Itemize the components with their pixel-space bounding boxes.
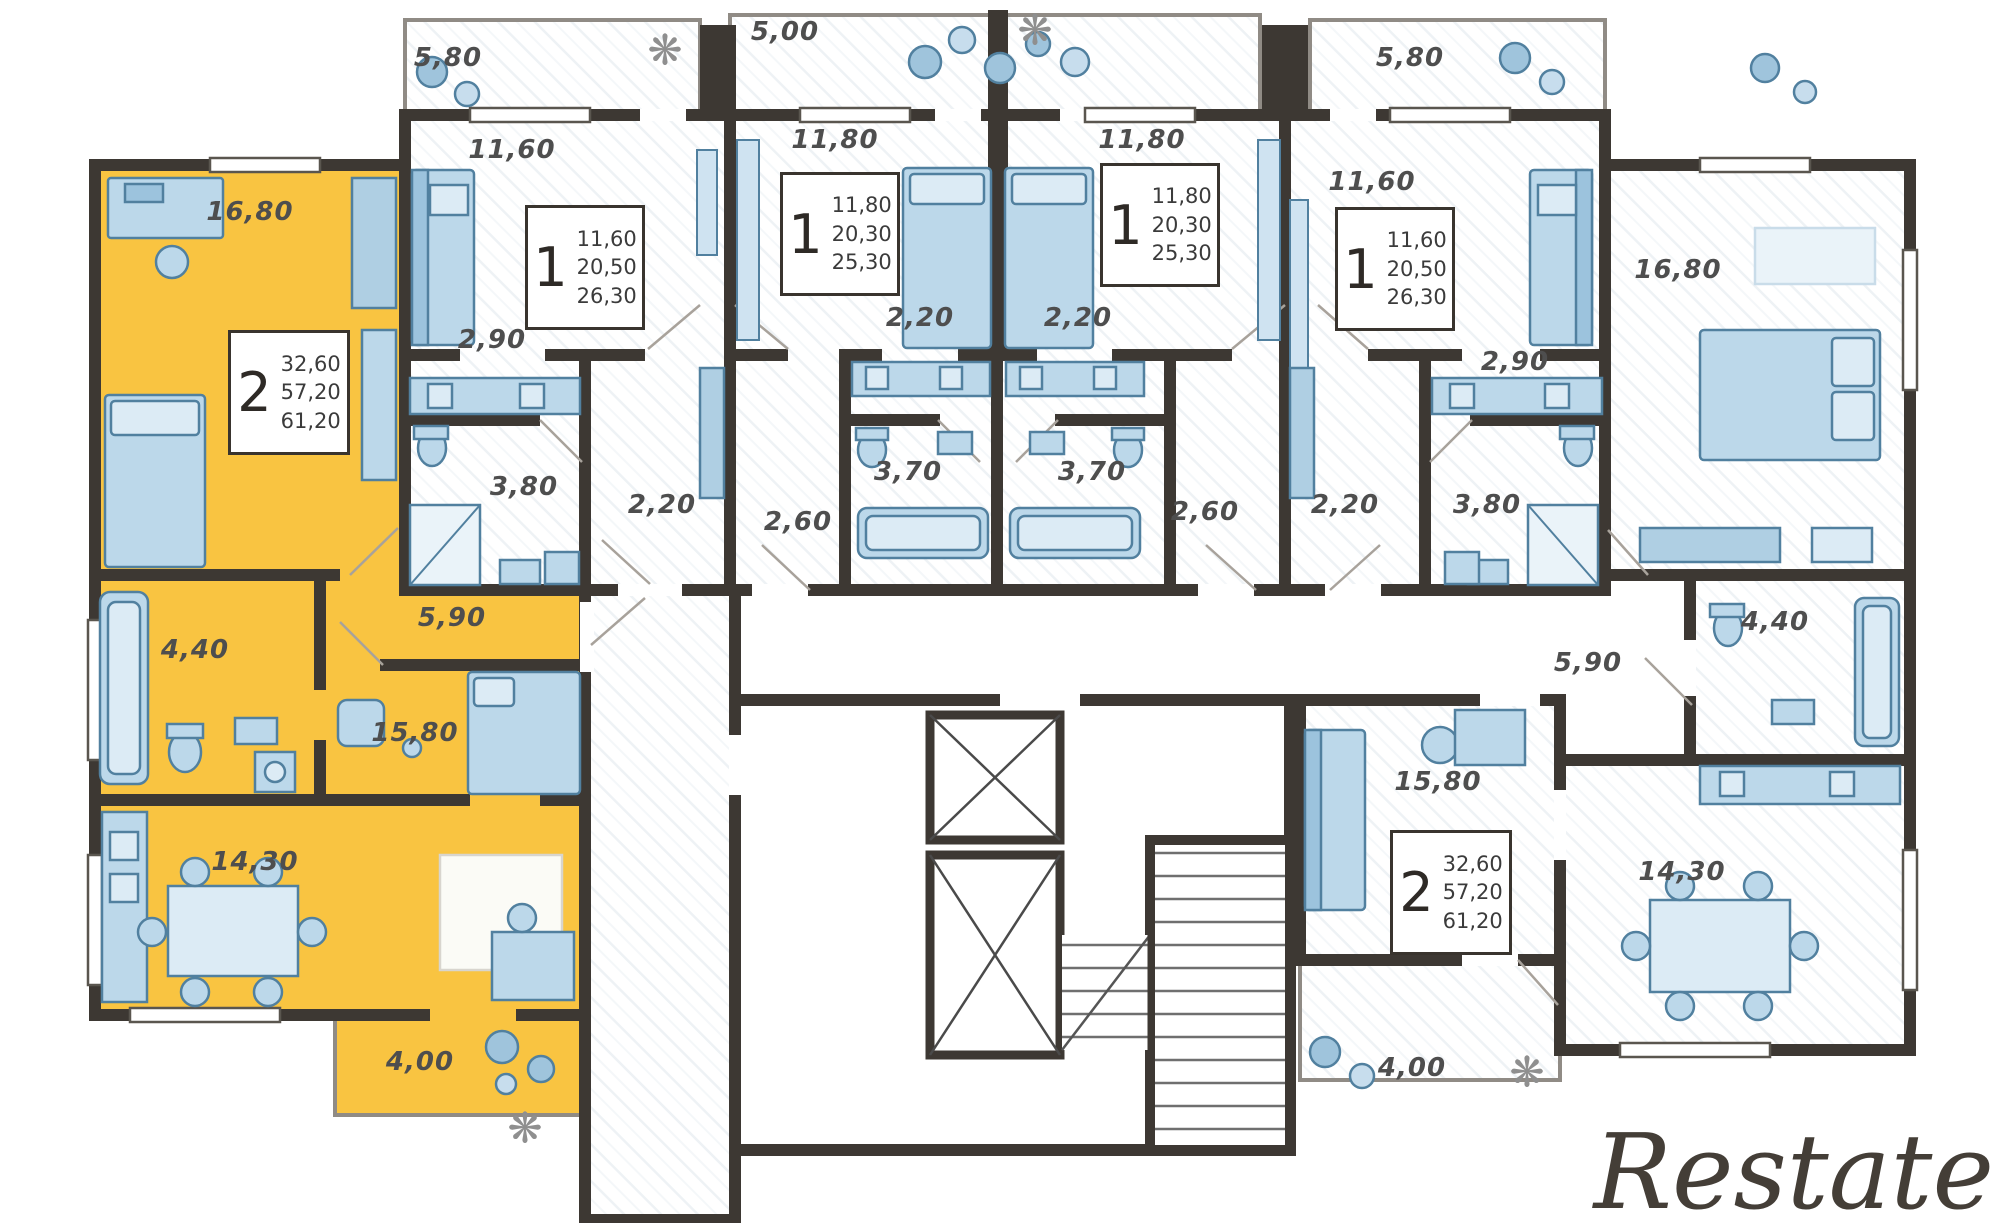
area-total: 26,30 (577, 282, 637, 310)
toilet-tank-c (1112, 428, 1144, 440)
stove-unit (110, 874, 138, 902)
floor-plan-drawing (0, 0, 2000, 1223)
room-label: 5,00 (751, 17, 819, 47)
sink-d (1450, 384, 1474, 408)
bench-e (1812, 528, 1872, 562)
dining-chair (298, 918, 326, 946)
core (585, 590, 1290, 1220)
sink-unit (110, 832, 138, 860)
desk-2 (492, 932, 574, 1000)
toilet-tank-e (1710, 604, 1744, 617)
bathtub-inner (108, 602, 140, 774)
dining-chair (254, 978, 282, 1006)
desk-e (1455, 710, 1525, 765)
wardrobe (352, 178, 396, 308)
room-label: 14,30 (211, 847, 298, 877)
room-label: 15,80 (371, 718, 458, 748)
apartment-info-box: 1 11,60 20,50 26,30 (525, 205, 645, 330)
area-main: 20,30 (1152, 211, 1212, 239)
flower-pot-e (1350, 1064, 1374, 1088)
wardrobe-e (1640, 528, 1780, 562)
dining-chair-e (1744, 872, 1772, 900)
area-total: 25,30 (1152, 239, 1212, 267)
stairs (1150, 840, 1290, 1150)
washer-d (1445, 552, 1479, 584)
apartment-info-box: 2 32,60 57,20 61,20 (1390, 830, 1512, 955)
room-label: 2,90 (458, 325, 526, 355)
room-label: 2,60 (764, 507, 832, 537)
room-label: 5,90 (418, 603, 486, 633)
area-main: 57,20 (1443, 878, 1503, 906)
balcony-apt-d (1310, 20, 1605, 115)
plant-icon: ❋ (647, 26, 682, 75)
washer-a (545, 552, 579, 584)
wardrobe-d (1290, 368, 1314, 498)
flower-pot (486, 1031, 518, 1063)
dining-chair (138, 918, 166, 946)
room-label: 15,80 (1394, 767, 1481, 797)
bed-2-pillow (474, 678, 514, 706)
bed-b-pillow (910, 174, 984, 204)
apartment-info-box: 1 11,80 20,30 25,30 (1100, 163, 1220, 287)
dining-chair (181, 978, 209, 1006)
apartment-info-box: 1 11,80 20,30 25,30 (780, 172, 900, 296)
chair-2 (508, 904, 536, 932)
toilet-tank-d (1560, 426, 1594, 439)
sink-a (428, 384, 452, 408)
wardrobe-a (700, 368, 724, 498)
sink-cab-c (1030, 432, 1064, 454)
sofa-d-back (1576, 170, 1592, 345)
apartment-type: 1 (788, 203, 822, 266)
flower-pot-d (1500, 43, 1530, 73)
toilet-tank-a (414, 426, 448, 439)
chair (156, 246, 188, 278)
watermark: Restate (1594, 1111, 1994, 1223)
apartment-type: 2 (1399, 861, 1433, 924)
balcony-door-opening (430, 1008, 516, 1022)
room-label: 16,80 (1634, 255, 1721, 285)
room-label: 2,20 (1044, 303, 1112, 333)
sink-cab-e (1772, 700, 1814, 724)
area-main: 57,20 (281, 378, 341, 406)
bed-c-pillow (1012, 174, 1086, 204)
plant-icon: ❋ (1509, 1048, 1544, 1097)
toilet-tank (167, 724, 203, 738)
area-living: 11,80 (832, 191, 892, 219)
room-label: 2,20 (1311, 490, 1379, 520)
sink (235, 718, 277, 744)
room-label: 3,80 (490, 472, 558, 502)
apartment-type: 2 (237, 361, 271, 424)
stove-a (520, 384, 544, 408)
corridor (585, 590, 735, 1220)
stove-e (1830, 772, 1854, 796)
flower-pot-e-top (1751, 54, 1779, 82)
sofa-d-pillow (1538, 185, 1576, 215)
area-living: 32,60 (1443, 850, 1503, 878)
toilet-tank-b (856, 428, 888, 440)
apartment-info-box: 2 32,60 57,20 61,20 (228, 330, 350, 455)
flower-pot-bc (949, 27, 975, 53)
sofa-pillow (430, 185, 468, 215)
area-living: 11,80 (1152, 182, 1212, 210)
flower-pot (528, 1056, 554, 1082)
room-label: 11,80 (1098, 125, 1185, 155)
room-label: 3,80 (1453, 490, 1521, 520)
dining-chair-e (1622, 932, 1650, 960)
room-label: 5,80 (1376, 43, 1444, 73)
flower-pot-bc (909, 46, 941, 78)
room-label: 5,90 (1554, 648, 1622, 678)
flower-pot-a (455, 82, 479, 106)
sink-cab-a (500, 560, 540, 584)
apartment-type: 1 (533, 236, 567, 299)
room-label: 2,20 (886, 303, 954, 333)
room-label: 2,60 (1171, 497, 1239, 527)
flower-pot-e-top (1794, 81, 1816, 103)
stove-d (1545, 384, 1569, 408)
flower-pot-e (1310, 1037, 1340, 1067)
apartment-type: 1 (1108, 194, 1142, 257)
sofa-back (412, 170, 428, 345)
area-main: 20,30 (832, 220, 892, 248)
room-label: 5,80 (414, 43, 482, 73)
rug-e (1755, 228, 1875, 284)
bathtub-e-inner (1863, 606, 1891, 738)
room-label: 4,40 (161, 635, 229, 665)
sink-cab-b (938, 432, 972, 454)
floor-plan: 16,80 4,40 5,90 15,80 14,30 4,00 5,80 11… (0, 0, 2000, 1223)
area-total: 61,20 (281, 407, 341, 435)
apartment-type: 1 (1343, 238, 1377, 301)
flower-pot-bc (985, 53, 1015, 83)
area-total: 25,30 (832, 248, 892, 276)
room-label: 3,70 (874, 457, 942, 487)
washing-machine-door (265, 762, 285, 782)
stove-c (1094, 367, 1116, 389)
area-living: 32,60 (281, 350, 341, 378)
room-label: 2,20 (628, 490, 696, 520)
plant-icon: ❋ (1017, 6, 1052, 55)
bathtub-c-inner (1018, 516, 1132, 550)
plant-icon: ❋ (507, 1104, 542, 1153)
area-main: 20,50 (577, 253, 637, 281)
dining-chair (181, 858, 209, 886)
room-label: 11,60 (468, 135, 555, 165)
monitor (125, 184, 163, 202)
room-label: 3,70 (1058, 457, 1126, 487)
dining-chair-e (1790, 932, 1818, 960)
dining-chair-e (1744, 992, 1772, 1020)
room-label: 4,00 (386, 1047, 454, 1077)
dining-table (168, 886, 298, 976)
area-living: 11,60 (577, 225, 637, 253)
flower-pot-d (1540, 70, 1564, 94)
area-living: 11,60 (1387, 226, 1447, 254)
stove-b (940, 367, 962, 389)
tv-unit (362, 330, 396, 480)
room-label: 16,80 (206, 197, 293, 227)
desk-chair-e (1422, 727, 1458, 763)
room-label: 11,80 (791, 125, 878, 155)
bed-e-pillow (1832, 338, 1874, 386)
room-label: 4,00 (1378, 1053, 1446, 1083)
bed-pillow (111, 401, 199, 435)
flower-pot (496, 1074, 516, 1094)
bathtub-b-inner (866, 516, 980, 550)
apartment-info-box: 1 11,60 20,50 26,30 (1335, 207, 1455, 331)
sink-e (1720, 772, 1744, 796)
dining-table-e (1650, 900, 1790, 992)
area-total: 61,20 (1443, 907, 1503, 935)
room-label: 2,90 (1481, 347, 1549, 377)
dining-chair-e (1666, 992, 1694, 1020)
area-main: 20,50 (1387, 255, 1447, 283)
bed-e-pillow (1832, 392, 1874, 440)
sink-b (866, 367, 888, 389)
area-total: 26,30 (1387, 283, 1447, 311)
room-label: 4,40 (1741, 607, 1809, 637)
sink-c (1020, 367, 1042, 389)
room-label: 14,30 (1638, 857, 1725, 887)
flower-pot-bc (1061, 48, 1089, 76)
sofa-e2-back (1305, 730, 1321, 910)
room-label: 11,60 (1328, 167, 1415, 197)
